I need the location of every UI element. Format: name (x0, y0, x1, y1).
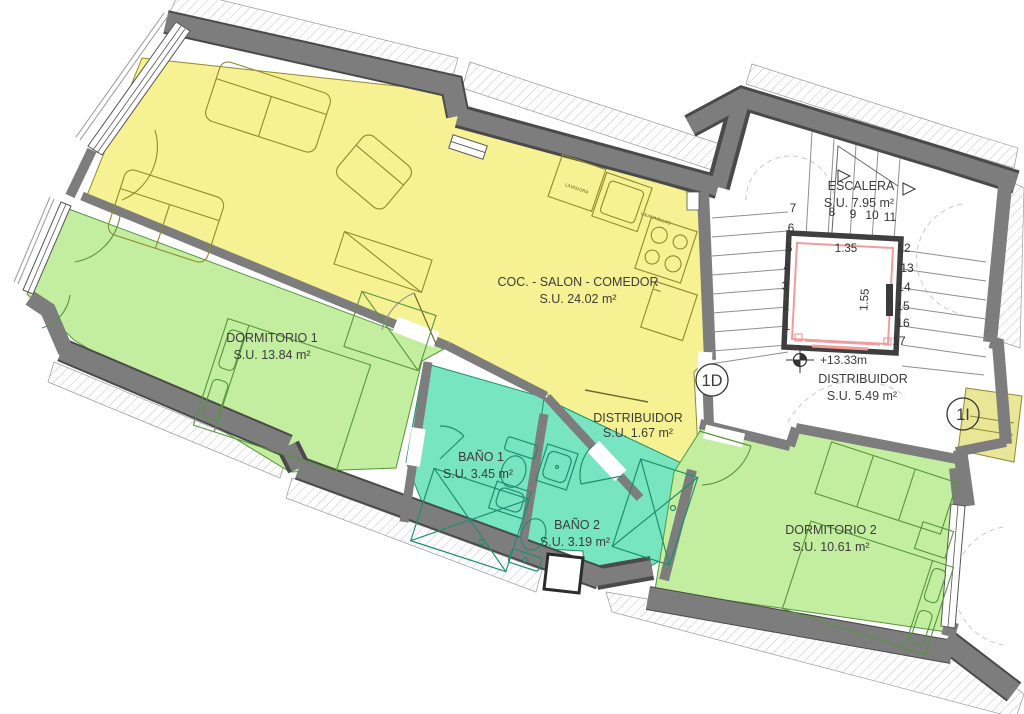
distribuidor-vivienda-area: S.U. 1.67 m² (603, 426, 673, 440)
stair-step-number: 17 (892, 334, 906, 348)
stair-step-number: 10 (865, 208, 879, 222)
unit-1i-label: 1I (956, 406, 970, 424)
elevator-rail (886, 284, 893, 316)
stair-arrow-icon (903, 183, 915, 195)
elevator-shaft: 1.35 1.55 (784, 233, 901, 353)
stair-step-number: 2 (783, 299, 790, 313)
stair-step-number: 4 (784, 260, 791, 274)
elevator-width-dim: 1.35 (835, 243, 857, 255)
level-value: +13.33m (820, 353, 867, 367)
stair-step-number: 12 (897, 241, 911, 255)
stair-step-number: 15 (896, 299, 910, 313)
bano1-area: S.U. 3.45 m² (443, 467, 513, 481)
stair-step-number: 16 (896, 316, 910, 330)
salon-area: S.U. 24.02 m² (539, 292, 616, 306)
distribuidor-rellano-area: S.U. 5.49 m² (827, 389, 897, 403)
stair-step-number: 1 (784, 319, 791, 333)
stair-step-number: 8 (829, 205, 836, 219)
dormitorio1-area: S.U. 13.84 m² (233, 348, 310, 362)
stair-step-number: 7 (790, 201, 797, 215)
stair-step-number: 13 (900, 261, 914, 275)
stair-step-number: 14 (897, 280, 911, 294)
bano2-label: BAÑO 2 (554, 518, 600, 532)
escalera-label: ESCALERA (828, 179, 895, 193)
distribuidor-vivienda-label: DISTRIBUIDOR (593, 411, 683, 425)
floor-plan-svg: 1.35 1.55 LAVADORA (0, 0, 1024, 714)
bano1-label: BAÑO 1 (458, 450, 504, 464)
dormitorio1-label: DORMITORIO 1 (226, 331, 317, 345)
stair-step-number: 11 (884, 210, 897, 224)
floor-plan-canvas: 1.35 1.55 LAVADORA (0, 0, 1024, 714)
distribuidor-rellano-label: DISTRIBUIDOR (818, 372, 908, 386)
stair-step-number: 9 (850, 207, 857, 221)
stair-step-number: 6 (788, 221, 795, 235)
dormitorio2-area: S.U. 10.61 m² (792, 540, 869, 554)
dormitorio2-label: DORMITORIO 2 (785, 523, 876, 537)
bano2-area: S.U. 3.19 m² (540, 535, 610, 549)
service-shaft (544, 554, 583, 593)
unit-marker-1d: 1D (696, 364, 728, 396)
stair-step-number: 5 (786, 241, 793, 255)
unit-1d-label: 1D (701, 372, 722, 390)
elevator-depth-dim: 1.55 (858, 288, 872, 311)
stair-step-number: 3 (782, 279, 789, 293)
salon-label: COC. - SALON - COMEDOR (497, 275, 658, 289)
